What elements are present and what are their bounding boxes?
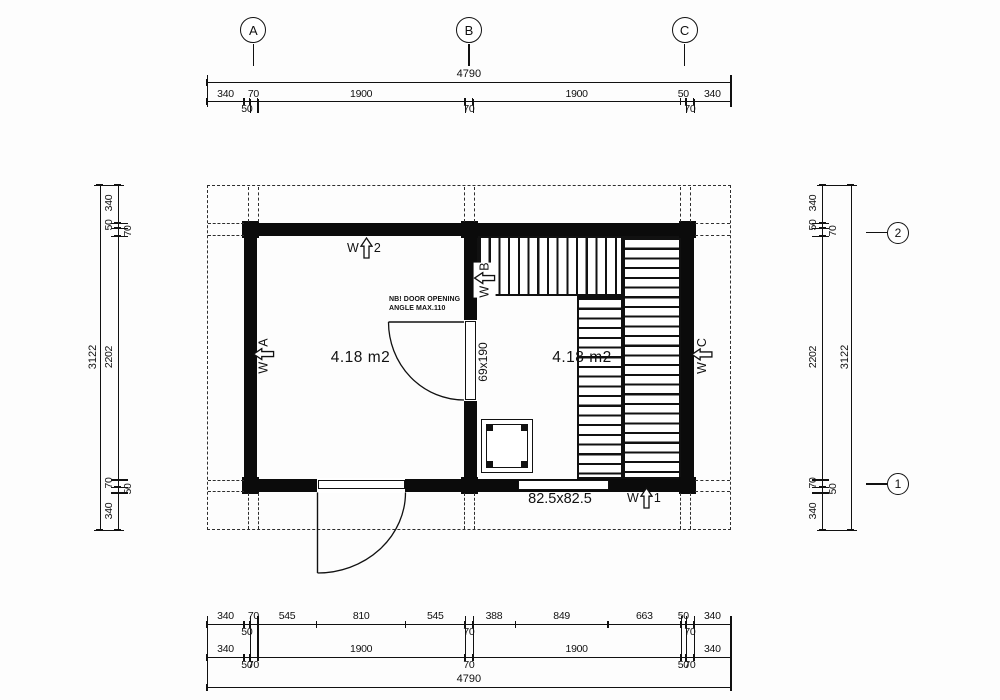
grid-dashed-stub bbox=[680, 187, 681, 223]
grid-marker-1: 1 bbox=[887, 473, 909, 495]
dim-line bbox=[111, 223, 128, 224]
opening-id: A bbox=[257, 338, 271, 346]
dim-line bbox=[207, 687, 731, 688]
grid-marker-label: 2 bbox=[895, 226, 902, 240]
dim-line bbox=[250, 616, 251, 661]
opening-label-w1: W 1 bbox=[627, 487, 661, 509]
left-total-dimension: 3122 bbox=[87, 337, 99, 377]
grid-marker-label: 1 bbox=[895, 477, 902, 491]
grid-marker-b: B bbox=[456, 17, 482, 43]
dim-label: 340 bbox=[688, 88, 736, 100]
dim-line bbox=[111, 487, 128, 488]
dim-line bbox=[207, 616, 208, 691]
opening-mark: W bbox=[478, 286, 492, 298]
opening-label-w2: W 2 bbox=[347, 237, 381, 259]
dim-tick bbox=[607, 621, 608, 628]
dim-label: 340 bbox=[688, 643, 736, 655]
dim-label: 545 bbox=[411, 610, 459, 622]
dim-label: 70 bbox=[827, 213, 839, 249]
dim-line bbox=[473, 99, 474, 113]
dim-line bbox=[94, 185, 124, 186]
dim-label: 70 bbox=[445, 626, 493, 638]
interior-door-swing-arc bbox=[389, 322, 465, 400]
opening-label-wb: W B bbox=[474, 262, 496, 297]
dim-label: 70 bbox=[666, 659, 714, 671]
dim-line bbox=[866, 232, 887, 233]
dim-tick bbox=[405, 621, 406, 628]
dim-label: 2202 bbox=[807, 339, 819, 375]
dim-label: 849 bbox=[538, 610, 586, 622]
dim-line bbox=[94, 530, 124, 531]
dim-label: 388 bbox=[470, 610, 518, 622]
dim-label: 545 bbox=[263, 610, 311, 622]
dim-line bbox=[100, 185, 101, 530]
dim-label: 70 bbox=[229, 659, 277, 671]
dim-label: 1900 bbox=[337, 88, 385, 100]
dim-line bbox=[812, 479, 829, 480]
dim-line bbox=[694, 99, 695, 113]
dim-line bbox=[866, 483, 887, 484]
grid-marker-c: C bbox=[672, 17, 698, 43]
opening-mark: W bbox=[695, 362, 709, 374]
dim-tick bbox=[515, 621, 516, 628]
dim-line bbox=[851, 185, 852, 530]
opening-mark: W bbox=[257, 362, 271, 374]
grid-marker-2: 2 bbox=[887, 222, 909, 244]
grid-dashed-stub bbox=[208, 223, 244, 224]
sauna-room-area-label: 4.18 m2 bbox=[552, 349, 612, 367]
dim-label: 70 bbox=[666, 103, 714, 115]
dim-label: 70 bbox=[229, 88, 277, 100]
opening-id: 1 bbox=[654, 491, 661, 505]
dim-line bbox=[686, 99, 687, 113]
dim-line bbox=[465, 616, 466, 661]
grid-dashed-stub bbox=[695, 491, 731, 492]
dim-label: 50 bbox=[103, 207, 115, 243]
exterior-door-swing-arc bbox=[318, 492, 406, 573]
dim-line bbox=[257, 616, 258, 661]
dim-line bbox=[817, 185, 857, 186]
dim-label: 1900 bbox=[553, 643, 601, 655]
dim-line bbox=[817, 530, 857, 531]
grid-marker-label: B bbox=[465, 23, 474, 38]
up-arrow-icon bbox=[640, 487, 653, 509]
grid-dashed-stub bbox=[690, 187, 691, 223]
grid-dashed-stub bbox=[464, 493, 465, 529]
dim-line bbox=[681, 616, 682, 661]
dim-label: 340 bbox=[201, 643, 249, 655]
dim-line bbox=[812, 223, 829, 224]
top-total-dimension: 4790 bbox=[439, 68, 499, 80]
grid-dashed-stub bbox=[695, 223, 731, 224]
dim-line bbox=[207, 75, 208, 107]
dim-tick bbox=[316, 621, 317, 628]
dim-line bbox=[812, 487, 829, 488]
dim-line bbox=[730, 616, 731, 691]
grid-dashed-stub bbox=[258, 187, 259, 223]
up-arrow-icon bbox=[253, 348, 275, 361]
grid-dashed-stub bbox=[208, 480, 244, 481]
grid-dashed-stub bbox=[695, 235, 731, 236]
grid-dashed-stub bbox=[464, 187, 465, 223]
dim-label: 1900 bbox=[553, 88, 601, 100]
opening-id: C bbox=[695, 338, 709, 347]
grid-dashed-stub bbox=[208, 235, 244, 236]
grid-dashed-stub bbox=[474, 187, 475, 223]
dim-line bbox=[468, 44, 469, 66]
dim-label: 50 bbox=[807, 207, 819, 243]
dim-line bbox=[207, 82, 731, 83]
grid-dashed-stub bbox=[680, 493, 681, 529]
dim-line bbox=[111, 492, 128, 493]
dim-line bbox=[111, 479, 128, 480]
opening-label-wc: W C bbox=[691, 338, 713, 374]
dim-label: 50 bbox=[223, 103, 271, 115]
opening-id: B bbox=[478, 262, 492, 270]
dim-label: 2202 bbox=[103, 339, 115, 375]
dim-label: 70 bbox=[666, 626, 714, 638]
dim-label: 1900 bbox=[337, 643, 385, 655]
dim-line bbox=[812, 228, 829, 229]
floor-plan-drawing: 4.18 m2 4.18 m2 NB! DOOR OPENING ANGLE M… bbox=[0, 0, 1000, 700]
dim-line bbox=[473, 616, 474, 661]
dim-label: 50 bbox=[122, 471, 134, 507]
grid-dashed-stub bbox=[248, 493, 249, 529]
grid-dashed-stub bbox=[208, 491, 244, 492]
opening-mark: W bbox=[347, 241, 359, 255]
dim-label: 50 bbox=[827, 471, 839, 507]
front-room-area-label: 4.18 m2 bbox=[331, 349, 391, 367]
grid-marker-label: C bbox=[680, 23, 689, 38]
dim-label: 50 bbox=[223, 626, 271, 638]
dim-line bbox=[465, 99, 466, 113]
dim-label: 70 bbox=[122, 213, 134, 249]
window-size-label: 82.5x82.5 bbox=[520, 491, 600, 507]
opening-label-wa: W A bbox=[253, 338, 275, 373]
dim-label: 340 bbox=[688, 610, 736, 622]
dim-line bbox=[686, 616, 687, 661]
dim-line bbox=[111, 236, 128, 237]
dim-label: 340 bbox=[807, 493, 819, 529]
door-note-line1: NB! DOOR OPENING bbox=[389, 296, 460, 303]
grid-dashed-stub bbox=[690, 493, 691, 529]
opening-mark: W bbox=[627, 491, 639, 505]
dim-line bbox=[250, 99, 251, 113]
dim-line bbox=[812, 236, 829, 237]
grid-dashed-stub bbox=[695, 480, 731, 481]
grid-dashed-stub bbox=[248, 187, 249, 223]
interior-door-size-label: 69x190 bbox=[476, 332, 490, 392]
up-arrow-icon bbox=[691, 348, 713, 361]
dim-line bbox=[812, 492, 829, 493]
grid-marker-label: A bbox=[249, 23, 258, 38]
dim-line bbox=[111, 228, 128, 229]
grid-dashed-stub bbox=[474, 493, 475, 529]
door-note-line2: ANGLE MAX.110 bbox=[389, 305, 446, 312]
dim-line bbox=[730, 75, 731, 107]
dim-line bbox=[694, 616, 695, 661]
up-arrow-icon bbox=[474, 272, 496, 285]
opening-id: 2 bbox=[374, 241, 381, 255]
dim-line bbox=[253, 44, 254, 66]
dim-line bbox=[684, 44, 685, 66]
dim-label: 70 bbox=[445, 659, 493, 671]
dim-label: 810 bbox=[337, 610, 385, 622]
up-arrow-icon bbox=[360, 237, 373, 259]
dim-line bbox=[257, 99, 258, 113]
dim-label: 340 bbox=[103, 493, 115, 529]
grid-dashed-stub bbox=[258, 493, 259, 529]
dim-label: 70 bbox=[445, 103, 493, 115]
right-total-dimension: 3122 bbox=[839, 337, 851, 377]
bottom-total-dimension: 4790 bbox=[439, 673, 499, 685]
